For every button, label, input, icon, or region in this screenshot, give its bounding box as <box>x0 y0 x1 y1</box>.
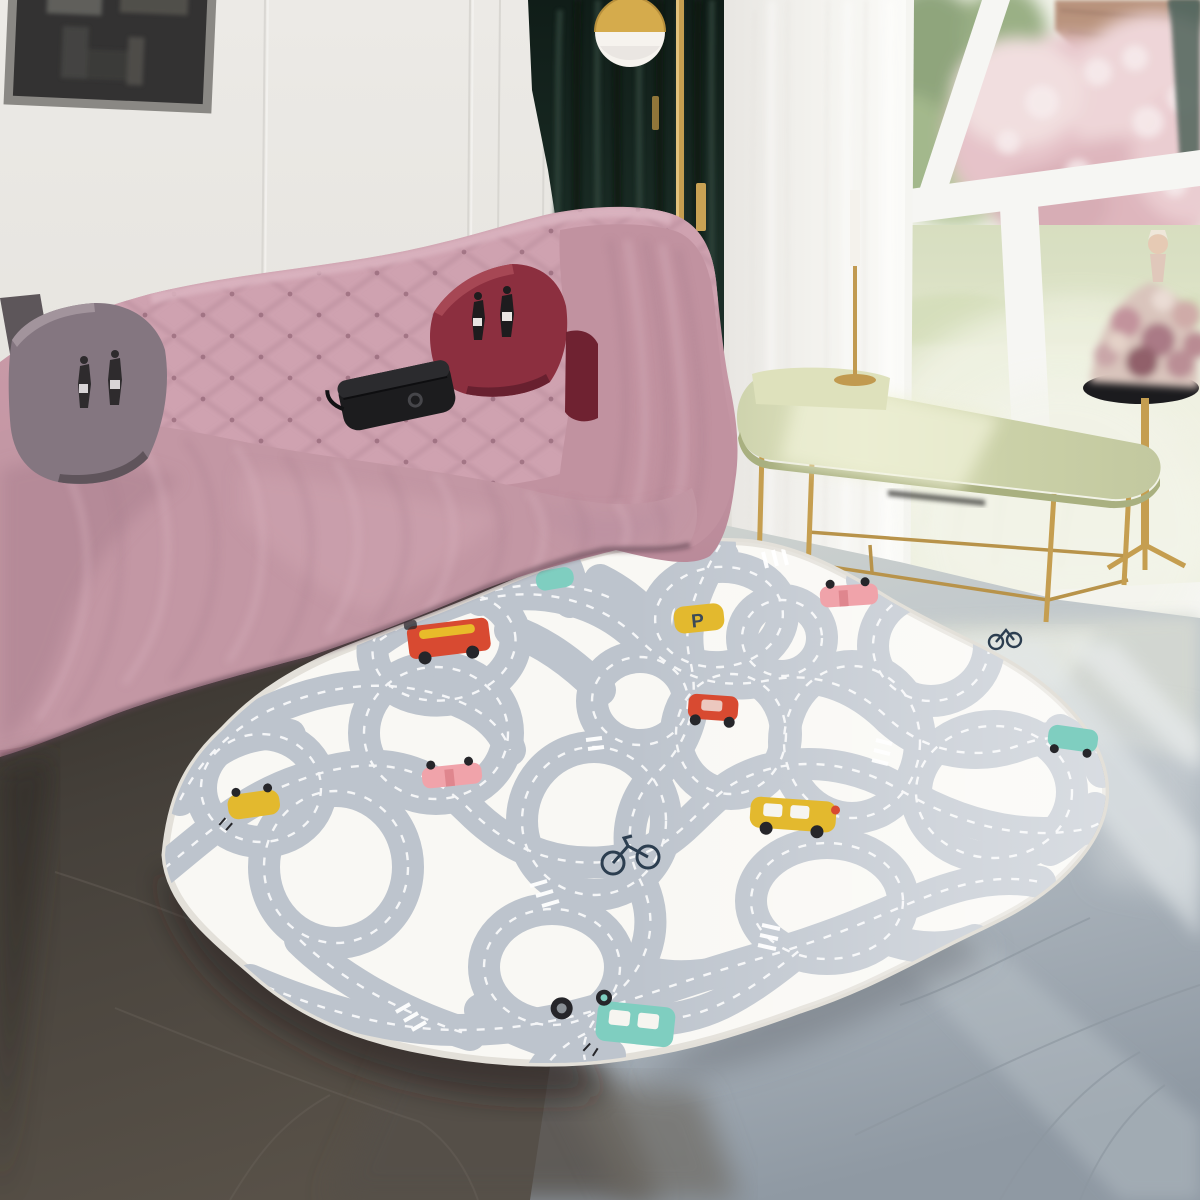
svg-text:P: P <box>690 610 705 632</box>
